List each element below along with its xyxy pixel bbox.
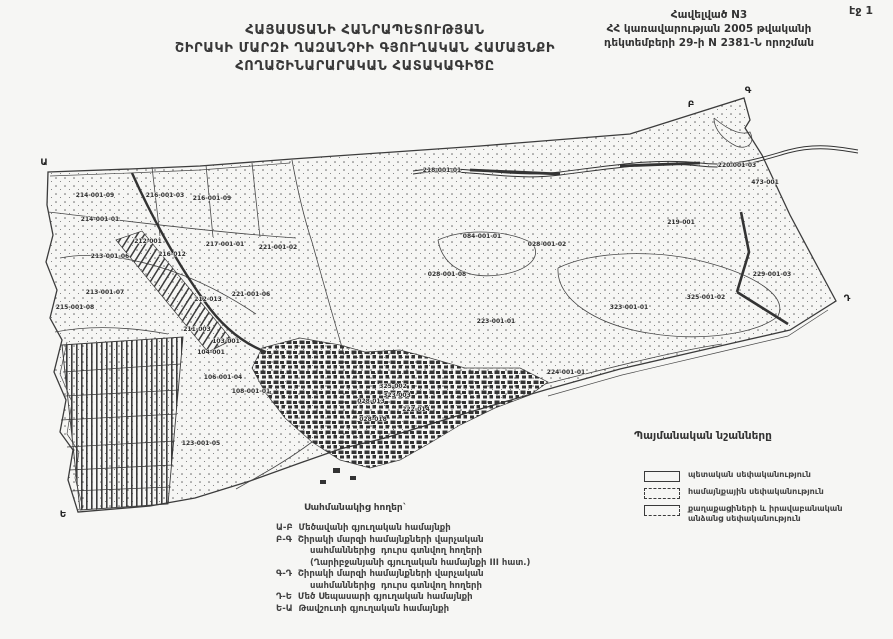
legend-item: քաղաքացիների և իրավաբանականանձանց սեփակա… xyxy=(644,504,884,524)
bordering-lands-note: Սահմանակից հողեր` Ա-Բ Մեծավանի գյուղական… xyxy=(276,503,616,615)
parcel-label: 224-001-01 xyxy=(547,369,585,376)
parcel-label: 212-013 xyxy=(194,296,222,303)
parcel-label: 213-001-06 xyxy=(91,253,129,260)
parcel-label: 028-001-02 xyxy=(528,241,566,248)
boundary-letter: Դ xyxy=(844,294,851,304)
boundary-letter: Ա xyxy=(40,158,47,168)
legend-item-label: պետական սեփականություն xyxy=(688,470,811,480)
parcel-label: 215-001-08 xyxy=(56,304,94,311)
outlying-buildings xyxy=(320,468,356,484)
parcel-label: 108-001-01 xyxy=(232,388,270,395)
scanned-cadastral-map-page: էջ 1 Հավելված N3 ՀՀ կառավարության 2005 թ… xyxy=(0,0,893,639)
parcel-label: 123-001-05 xyxy=(182,440,220,447)
boundary-letter: Գ xyxy=(745,86,752,96)
parcel-label: 214-001-01 xyxy=(81,216,119,223)
bordering-lands-line: Ա-Բ Մեծավանի գյուղական համայնքի xyxy=(276,523,616,535)
parcel-label: 212-001 xyxy=(134,238,162,245)
parcel-label: 473-001 xyxy=(751,179,779,186)
private-ownership-symbol xyxy=(644,505,680,516)
parcel-label: 106-001-04 xyxy=(204,374,242,381)
parcel-label: 104-001 xyxy=(197,349,225,356)
bordering-lands-lines: Ա-Բ Մեծավանի գյուղական համայնքիԲ-Գ Շիրակ… xyxy=(276,523,616,615)
legend-item-label: համայնքային սեփականություն xyxy=(688,487,824,497)
parcel-label: 325-002 xyxy=(379,383,407,390)
strip-parcels xyxy=(61,337,183,510)
state-ownership-symbol xyxy=(644,471,680,482)
parcel-label: 221-001-02 xyxy=(259,244,297,251)
parcel-label: 323-001-01 xyxy=(610,304,648,311)
parcel-label: 214-001-09 xyxy=(76,192,114,199)
bordering-lands-line: Գ-Դ Շիրակի մարզի համայնքների վարչական xyxy=(276,569,616,581)
legend: Պայմանական նշանները պետական սեփականությո… xyxy=(626,430,884,529)
legend-items: պետական սեփականությունհամայնքային սեփակա… xyxy=(626,470,884,524)
parcel-label: 084-001-01 xyxy=(463,233,501,240)
bordering-lands-line: (Ղարիբջանյանի գյուղական համայնքի III հատ… xyxy=(276,558,616,570)
boundary-letter: Ե xyxy=(60,510,67,520)
parcel-label: 325-001-02 xyxy=(687,294,725,301)
legend-title: Պայմանական նշանները xyxy=(634,430,884,442)
community-ownership-symbol xyxy=(644,488,680,499)
parcel-label: 028-013 xyxy=(357,398,385,405)
bordering-lands-line: Դ-Ե Մեծ Սեպասարի գյուղական համայնքի xyxy=(276,592,616,604)
parcel-label: 218-001-01 xyxy=(423,167,461,174)
parcel-label: 213-001-07 xyxy=(86,289,124,296)
bordering-lands-line: սահմաններից դուրս գտնվող հողերի xyxy=(276,581,616,593)
parcel-label: 219-001 xyxy=(667,219,695,226)
parcel-label: 229-001-03 xyxy=(753,271,791,278)
parcel-label: 028-018 xyxy=(359,416,387,423)
parcel-label: 223-001-01 xyxy=(477,318,515,325)
parcel-label: 221-001-06 xyxy=(232,291,270,298)
parcel-label: 217-001-01 xyxy=(206,241,244,248)
legend-item: համայնքային սեփականություն xyxy=(644,487,884,499)
parcel-label: 216-001-03 xyxy=(146,192,184,199)
parcel-label: 220-001-03 xyxy=(718,162,756,169)
bordering-lands-line: սահմաններից դուրս գտնվող հողերի xyxy=(276,546,616,558)
bordering-lands-line: Ե-Ա Թավշուտի գյուղական համայնքի xyxy=(276,604,616,616)
parcel-label: 211-003 xyxy=(183,326,211,333)
parcel-label: 216-012 xyxy=(158,251,186,258)
parcel-label: 216-001-09 xyxy=(193,195,231,202)
boundary-letter: Բ xyxy=(688,100,695,110)
parcel-label: 028-001-08 xyxy=(428,271,466,278)
parcel-label: 103-001 xyxy=(212,338,240,345)
bordering-lands-line: Բ-Գ Շիրակի մարզի համայնքների վարչական xyxy=(276,535,616,547)
parcel-label: 323-003 xyxy=(383,392,411,399)
legend-item-label: քաղաքացիների և իրավաբանականանձանց սեփակա… xyxy=(688,504,842,524)
parcel-label: 222-014 xyxy=(402,406,430,413)
bordering-lands-title: Սահմանակից հողեր` xyxy=(304,503,616,513)
legend-item: պետական սեփականություն xyxy=(644,470,884,482)
